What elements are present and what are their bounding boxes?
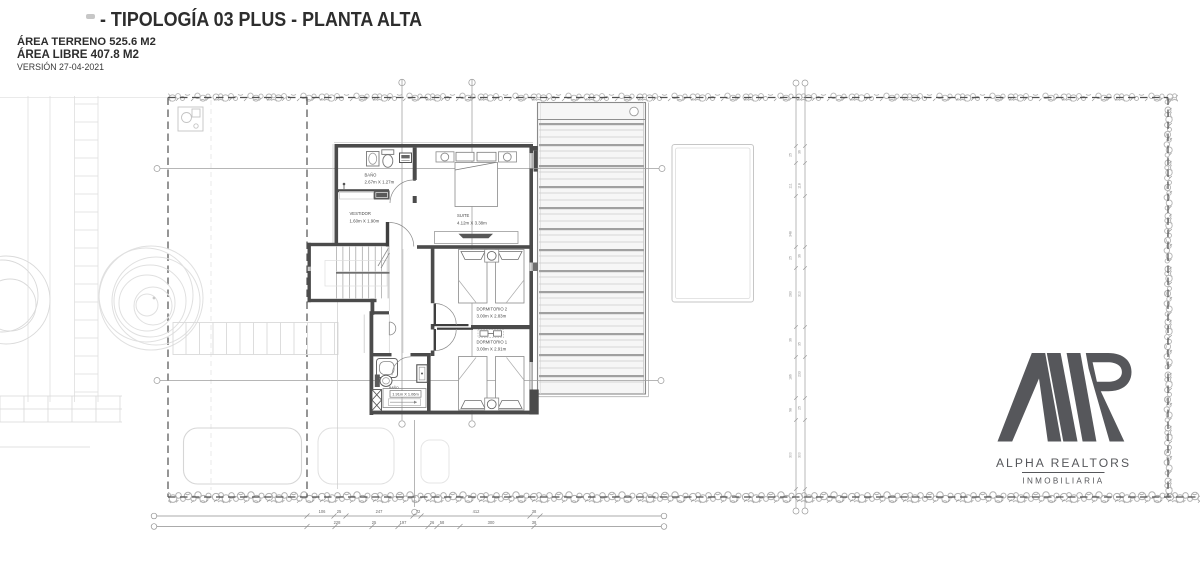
svg-text:1.91m X 1.06m: 1.91m X 1.06m [392,392,418,397]
svg-text:348: 348 [789,231,793,237]
svg-text:DORMITORIO 1: DORMITORIO 1 [477,340,508,345]
svg-text:ALPHA REALTORS: ALPHA REALTORS [996,456,1131,470]
svg-text:1.60m X 1.90m: 1.60m X 1.90m [350,219,380,224]
svg-text:ÁREA LIBRE 407.8 M2: ÁREA LIBRE 407.8 M2 [17,48,139,61]
svg-text:4.12m X 3.38m: 4.12m X 3.38m [457,221,487,226]
svg-text:SUITE: SUITE [457,213,470,218]
svg-text:BAÑO: BAÑO [389,385,399,390]
svg-text:ÁREA TERRENO 525.6 M2: ÁREA TERRENO 525.6 M2 [17,35,156,48]
svg-text:58: 58 [440,520,445,525]
svg-text:3.00m X 2.83m: 3.00m X 2.83m [477,314,507,319]
svg-text:118: 118 [798,183,802,189]
svg-text:25: 25 [789,256,793,260]
svg-text:38: 38 [532,520,537,525]
svg-text:233: 233 [798,371,802,377]
svg-text:111: 111 [789,183,793,188]
svg-text:BAÑO: BAÑO [365,173,378,178]
svg-text:36: 36 [798,254,802,258]
svg-text:2.67m X 1.27m: 2.67m X 1.27m [365,180,395,185]
svg-text:DORMITORIO 2: DORMITORIO 2 [477,307,508,312]
svg-text:247: 247 [376,509,384,514]
svg-text:36: 36 [789,338,793,342]
svg-text:25: 25 [798,406,802,410]
svg-text:26: 26 [430,520,435,525]
svg-text:INMOBILIARIA: INMOBILIARIA [1022,477,1104,486]
svg-text:25: 25 [337,509,342,514]
svg-text:- TIPOLOGÍA 03 PLUS - PLANTA A: - TIPOLOGÍA 03 PLUS - PLANTA ALTA [100,8,422,31]
svg-text:186: 186 [789,374,793,380]
svg-text:300: 300 [798,452,802,458]
svg-text:412: 412 [473,509,481,514]
svg-text:VERSIÓN 27-04-2021: VERSIÓN 27-04-2021 [17,62,104,72]
svg-text:VESTIDOR: VESTIDOR [350,211,371,216]
svg-text:98: 98 [789,408,793,412]
svg-text:106: 106 [319,509,327,514]
svg-text:25: 25 [372,520,377,525]
svg-text:36: 36 [798,150,802,154]
svg-text:228: 228 [334,520,342,525]
svg-text:300: 300 [488,520,496,525]
svg-text:35: 35 [798,342,802,346]
svg-text:3.00m X 2.91m: 3.00m X 2.91m [477,347,507,352]
svg-text:197: 197 [400,520,408,525]
svg-text:283: 283 [789,291,793,297]
svg-text:310: 310 [798,291,802,297]
svg-text:25: 25 [789,153,793,157]
svg-text:300: 300 [789,452,793,458]
svg-text:72: 72 [416,509,421,514]
svg-text:38: 38 [532,509,537,514]
